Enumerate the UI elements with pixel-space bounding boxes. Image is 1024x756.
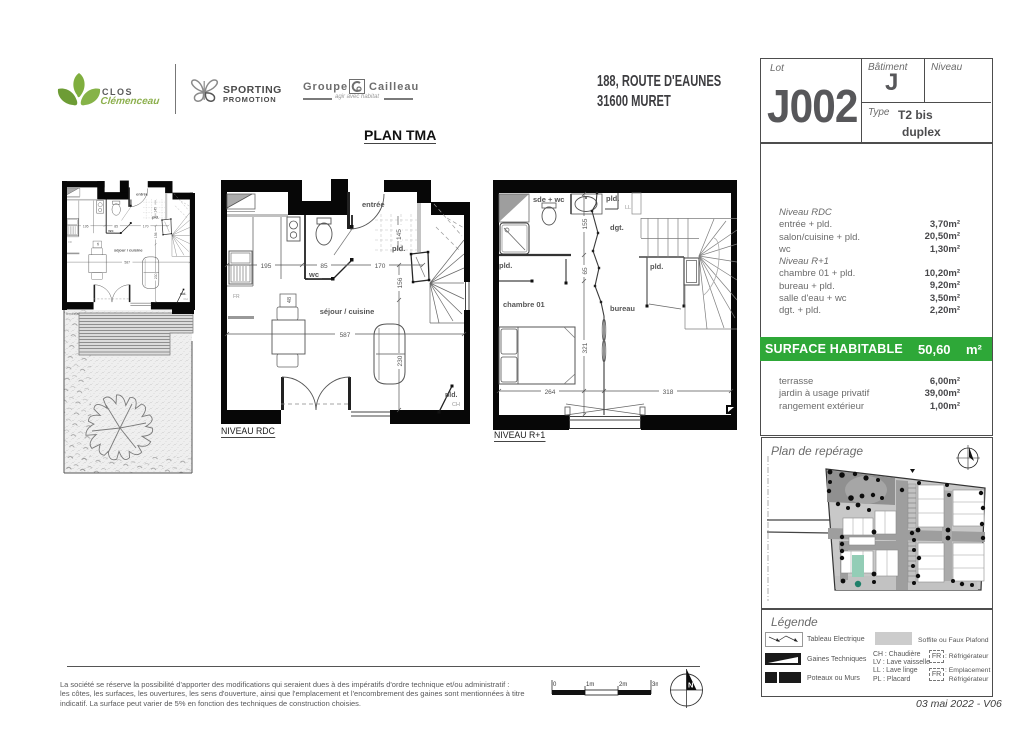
svg-text:FR: FR (233, 294, 240, 300)
svg-text:pld.: pld. (499, 261, 512, 270)
svg-text:587: 587 (340, 332, 351, 339)
svg-text:entrée: entrée (362, 200, 385, 209)
svg-text:terrasse: terrasse (66, 312, 79, 316)
svg-text:145: 145 (396, 229, 403, 240)
svg-text:1m: 1m (586, 682, 594, 688)
svg-text:pld.: pld. (392, 244, 405, 253)
svg-text:155: 155 (582, 218, 589, 229)
svg-text:170: 170 (375, 263, 386, 270)
svg-text:CH: CH (452, 402, 460, 408)
svg-text:N: N (688, 681, 693, 690)
svg-text:wc: wc (308, 270, 319, 279)
svg-text:bureau: bureau (610, 304, 635, 313)
svg-text:pld.: pld. (650, 262, 663, 271)
svg-text:dgt.: dgt. (610, 223, 624, 232)
svg-text:264: 264 (545, 389, 556, 396)
svg-text:séjour / cuisine: séjour / cuisine (320, 307, 375, 316)
svg-text:0: 0 (553, 682, 557, 688)
svg-text:156: 156 (397, 277, 404, 288)
svg-text:85: 85 (320, 263, 328, 270)
svg-text:321: 321 (582, 342, 589, 353)
svg-text:318: 318 (663, 389, 674, 396)
svg-text:195: 195 (261, 263, 272, 270)
svg-text:230: 230 (397, 355, 404, 366)
svg-text:pld.: pld. (445, 392, 457, 399)
svg-text:3m: 3m (652, 682, 658, 688)
svg-text:65: 65 (582, 267, 589, 275)
svg-text:pld.: pld. (606, 194, 619, 203)
svg-text:chambre 01: chambre 01 (503, 300, 545, 309)
svg-text:2m: 2m (619, 682, 627, 688)
svg-text:LL: LL (625, 205, 631, 211)
svg-text:48: 48 (287, 297, 293, 303)
